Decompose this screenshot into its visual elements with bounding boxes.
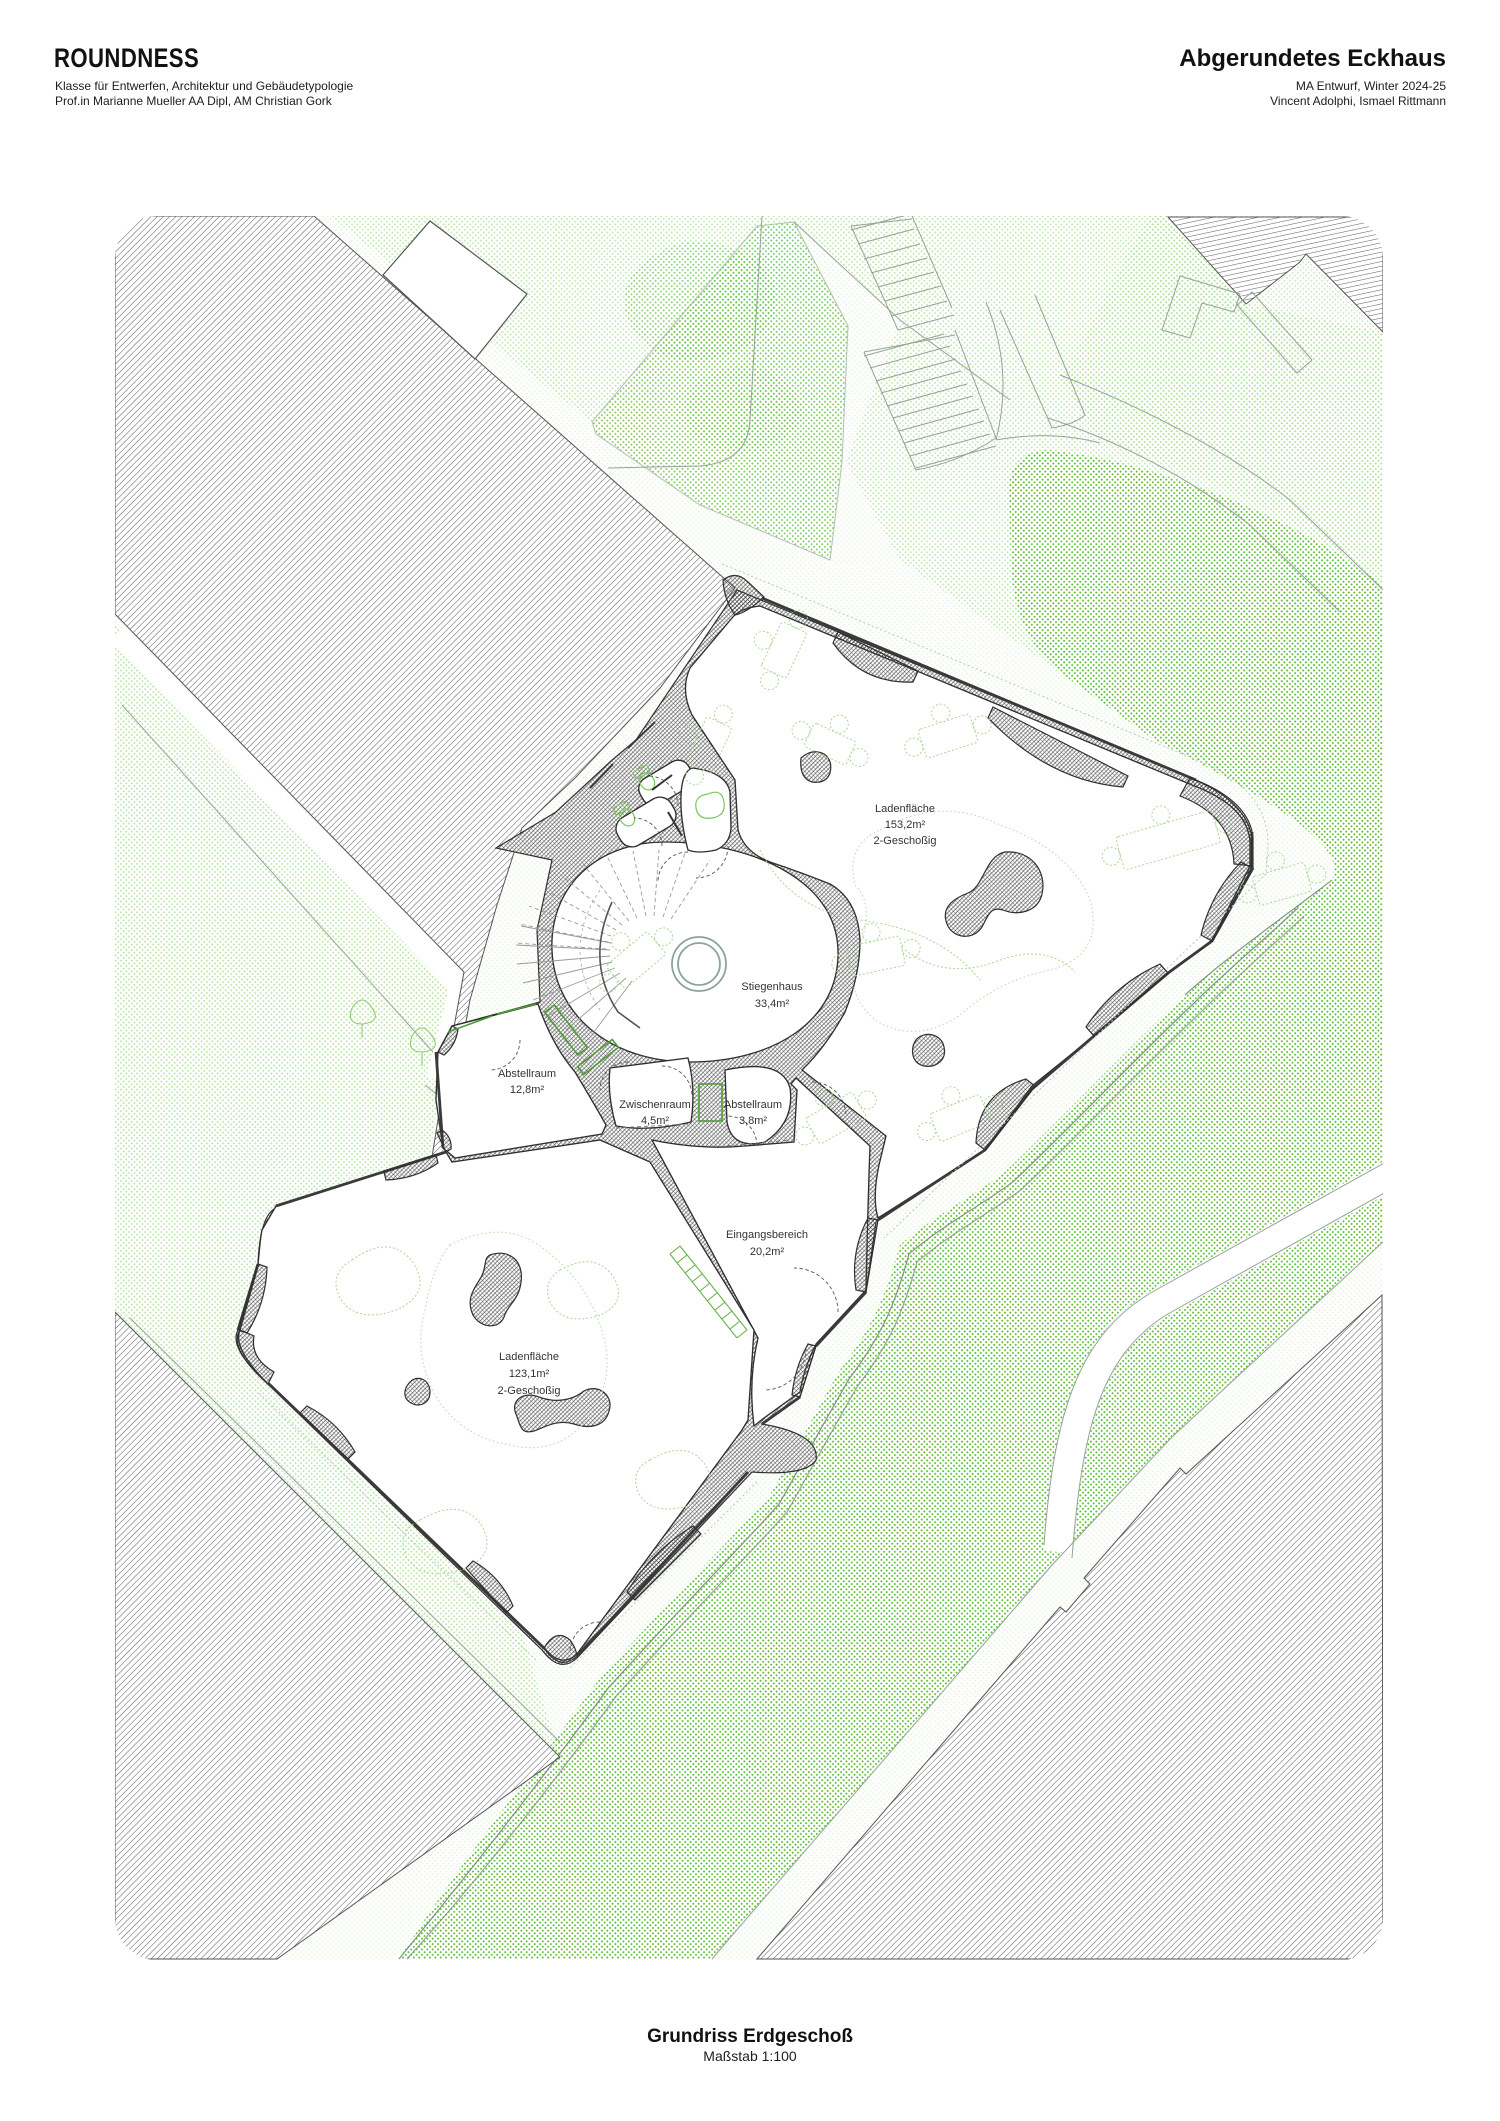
svg-text:Eingangsbereich: Eingangsbereich	[726, 1229, 808, 1241]
svg-text:2-Geschoßig: 2-Geschoßig	[498, 1385, 561, 1397]
svg-text:Ladenfläche: Ladenfläche	[875, 803, 935, 815]
svg-text:Stiegenhaus: Stiegenhaus	[741, 981, 803, 993]
svg-text:33,4m²: 33,4m²	[755, 998, 790, 1010]
svg-text:2-Geschoßig: 2-Geschoßig	[874, 835, 937, 847]
svg-text:Abstellraum: Abstellraum	[498, 1068, 556, 1080]
svg-text:Zwischenraum: Zwischenraum	[619, 1099, 691, 1111]
svg-text:123,1m²: 123,1m²	[509, 1368, 550, 1380]
svg-text:12,8m²: 12,8m²	[510, 1084, 545, 1096]
svg-text:20,2m²: 20,2m²	[750, 1246, 785, 1258]
svg-text:153,2m²: 153,2m²	[885, 819, 926, 831]
svg-text:3,8m²: 3,8m²	[739, 1115, 767, 1127]
svg-text:Ladenfläche: Ladenfläche	[499, 1351, 559, 1363]
svg-text:Abstellraum: Abstellraum	[724, 1099, 782, 1111]
svg-text:4,5m²: 4,5m²	[641, 1115, 669, 1127]
